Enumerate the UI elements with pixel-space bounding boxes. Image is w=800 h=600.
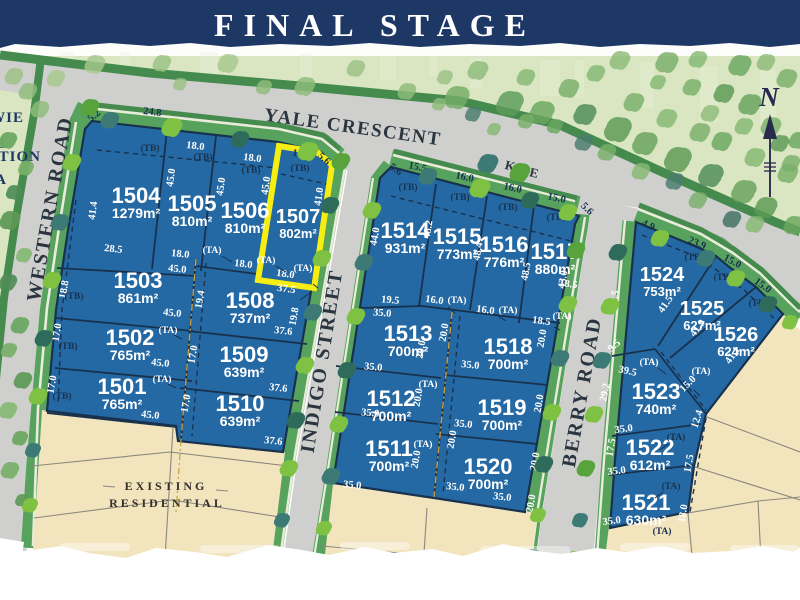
svg-text:740m²: 740m² <box>636 401 677 417</box>
svg-text:700m²: 700m² <box>369 458 410 474</box>
svg-text:18.0: 18.0 <box>243 152 263 165</box>
svg-text:1524: 1524 <box>640 264 685 286</box>
svg-text:861m²: 861m² <box>118 290 159 306</box>
svg-text:737m²: 737m² <box>230 310 271 326</box>
svg-text:35.0: 35.0 <box>361 407 380 420</box>
svg-text:(TB): (TB) <box>194 152 213 163</box>
svg-text:1526: 1526 <box>714 324 759 346</box>
svg-text:(TB): (TB) <box>141 143 160 154</box>
svg-text:765m²: 765m² <box>102 396 143 412</box>
svg-text:(TB): (TB) <box>451 192 470 203</box>
svg-text:810m²: 810m² <box>225 220 266 236</box>
svg-text:37.6: 37.6 <box>269 382 288 395</box>
svg-text:(TA): (TA) <box>159 325 178 336</box>
svg-text:45.0: 45.0 <box>141 409 160 422</box>
svg-text:(TA): (TA) <box>448 295 467 306</box>
svg-text:(TA): (TA) <box>653 526 672 537</box>
svg-text:810m²: 810m² <box>172 213 213 229</box>
svg-text:776m²: 776m² <box>484 254 525 270</box>
svg-text:(TA): (TA) <box>667 432 686 443</box>
svg-text:(TB): (TB) <box>65 291 84 302</box>
svg-text:RESIDENTIAL: RESIDENTIAL <box>109 496 225 510</box>
svg-text:(TB): (TB) <box>499 202 518 213</box>
svg-text:35.0: 35.0 <box>614 423 634 436</box>
svg-text:35.0: 35.0 <box>602 515 622 528</box>
svg-text:35.0: 35.0 <box>493 491 512 504</box>
svg-text:(TA): (TA) <box>294 263 313 274</box>
svg-text:45.0: 45.0 <box>163 307 182 320</box>
svg-text:A: A <box>0 172 7 188</box>
svg-text:18.0: 18.0 <box>171 248 190 261</box>
svg-text:37.6: 37.6 <box>264 435 283 448</box>
svg-text:612m²: 612m² <box>630 457 671 473</box>
svg-text:N: N <box>758 82 780 112</box>
svg-text:45.0: 45.0 <box>151 357 170 370</box>
svg-text:802m²: 802m² <box>279 226 317 241</box>
svg-text:45.0: 45.0 <box>168 263 187 276</box>
svg-text:(TA): (TA) <box>662 481 681 492</box>
svg-text:(TA): (TA) <box>153 374 172 385</box>
svg-text:18.0: 18.0 <box>186 140 206 153</box>
svg-text:(TB): (TB) <box>53 391 72 402</box>
svg-text:37.6: 37.6 <box>274 325 293 338</box>
svg-text:35.0: 35.0 <box>343 479 362 492</box>
svg-text:28.5: 28.5 <box>104 243 123 256</box>
svg-text:700m²: 700m² <box>482 417 523 433</box>
svg-text:630m²: 630m² <box>626 512 667 528</box>
svg-text:35.0: 35.0 <box>446 481 465 494</box>
svg-text:639m²: 639m² <box>220 413 261 429</box>
svg-text:(TA): (TA) <box>419 379 438 390</box>
svg-text:(TB): (TB) <box>242 165 261 176</box>
svg-text:1525: 1525 <box>680 298 725 320</box>
svg-text:931m²: 931m² <box>385 240 426 256</box>
svg-text:(TB): (TB) <box>59 341 78 352</box>
svg-text:35.0: 35.0 <box>607 465 627 478</box>
svg-text:FINAL STAGE: FINAL STAGE <box>214 7 536 43</box>
svg-text:(TA): (TA) <box>203 245 222 256</box>
svg-text:18.0: 18.0 <box>234 258 254 271</box>
svg-text:EXISTING: EXISTING <box>125 479 208 493</box>
svg-text:753m²: 753m² <box>643 284 681 299</box>
svg-text:700m²: 700m² <box>468 476 509 492</box>
svg-text:(TA): (TA) <box>414 439 433 450</box>
svg-text:1279m²: 1279m² <box>112 205 161 221</box>
svg-text:35.0: 35.0 <box>364 361 383 374</box>
svg-text:(TA): (TA) <box>499 305 518 316</box>
svg-text:ATION: ATION <box>0 149 41 165</box>
svg-text:639m²: 639m² <box>224 364 265 380</box>
svg-text:(TA): (TA) <box>257 255 276 266</box>
svg-text:765m²: 765m² <box>110 347 151 363</box>
svg-text:700m²: 700m² <box>488 356 529 372</box>
svg-text:(TA): (TA) <box>640 357 659 368</box>
svg-text:WIE: WIE <box>0 110 24 126</box>
svg-text:24.8: 24.8 <box>143 106 163 119</box>
svg-text:35.0: 35.0 <box>373 307 392 320</box>
svg-text:(TA): (TA) <box>692 366 711 377</box>
svg-text:35.0: 35.0 <box>461 359 480 372</box>
svg-text:(TB): (TB) <box>399 182 418 193</box>
svg-text:19.5: 19.5 <box>381 294 400 307</box>
svg-text:(TB): (TB) <box>291 163 310 174</box>
svg-text:35.0: 35.0 <box>454 418 473 431</box>
svg-text:1507: 1507 <box>276 206 321 228</box>
